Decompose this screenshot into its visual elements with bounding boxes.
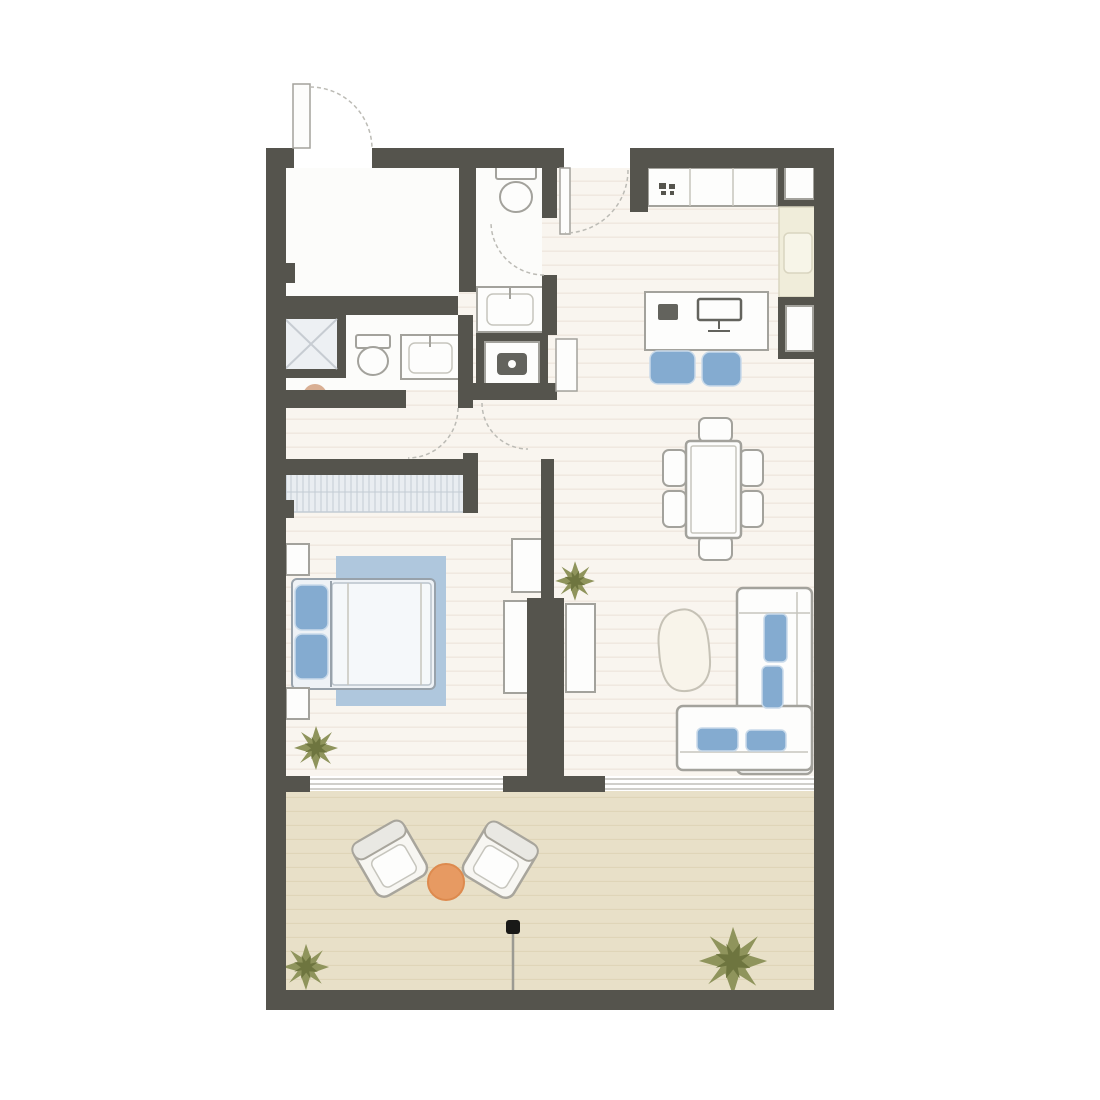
shower-icon	[276, 310, 346, 378]
sink-vanity-icon	[477, 287, 543, 332]
wc-right-wall-bottom	[542, 275, 557, 335]
wall-pilaster	[285, 263, 295, 283]
sofa-cushion-icon	[697, 728, 738, 751]
sink-vanity-icon	[401, 335, 460, 379]
toilet-icon	[496, 166, 536, 212]
wc-right-wall-top	[542, 158, 557, 218]
nightstand-icon	[286, 544, 309, 575]
bathroom-bottom-wall	[266, 390, 406, 408]
kitchen-sink-icon	[784, 233, 812, 273]
kitchen-stub-wall	[630, 148, 648, 212]
laptop-icon	[658, 304, 678, 320]
pillow-icon	[295, 585, 328, 630]
laundry-door-leaf	[556, 339, 577, 391]
desk-chair-icon	[702, 352, 741, 386]
nightstand-icon	[286, 688, 309, 719]
terrace-boundary-wall	[266, 776, 310, 792]
hall-wall	[458, 383, 557, 400]
side-table-icon	[428, 864, 464, 900]
entry-foyer-floor	[286, 168, 459, 296]
window-icon	[605, 777, 814, 791]
sofa-cushion-icon	[746, 730, 786, 751]
foyer-bottom-wall	[266, 296, 458, 315]
bedroom-column	[463, 453, 478, 513]
divider-foot-wall	[503, 776, 605, 792]
wc-left-wall	[459, 158, 476, 292]
divider-wall-thin	[541, 459, 554, 601]
floor-plan-canvas	[0, 0, 1100, 1100]
window-icon	[310, 777, 503, 791]
desk-chair-icon	[650, 351, 695, 384]
pillow-icon	[295, 634, 328, 679]
sofa-cushion-icon	[762, 666, 783, 708]
bedroom-top-wall	[266, 459, 465, 475]
kitchen-counter-icon	[648, 168, 777, 206]
toilet-icon	[356, 335, 390, 375]
tv-console-icon	[566, 604, 595, 692]
divider-wall-thick	[527, 598, 564, 778]
cabinet-icon	[512, 539, 543, 592]
sofa-cushion-icon	[764, 614, 787, 662]
wall-pilaster	[285, 500, 294, 518]
wardrobe-icon	[286, 472, 464, 512]
tv-console-icon	[504, 601, 531, 693]
floor-plan-screenshot	[0, 0, 1100, 1100]
dining-table-icon	[686, 441, 741, 538]
entry-door-icon	[293, 84, 372, 149]
service-shaft-icon	[778, 297, 820, 359]
coffee-table-icon	[659, 609, 711, 691]
